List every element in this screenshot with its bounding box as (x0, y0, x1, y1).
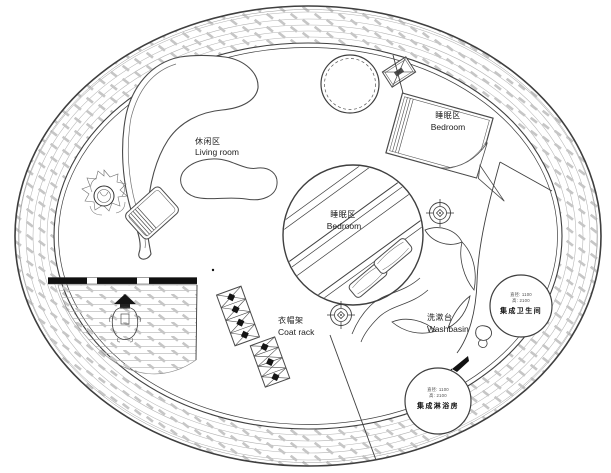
floor-plan-canvas: 休闲区 Living room 睡眠区 Bedroom (0, 0, 611, 473)
potted-plant (82, 170, 127, 215)
bedroom-center-label-zh: 睡眠区 (330, 210, 356, 219)
vent-box (382, 57, 415, 87)
bathroom-pod-name: 集成卫生间 (499, 306, 542, 315)
floor-plan-drawing: 休闲区 Living room 睡眠区 Bedroom (0, 0, 611, 473)
interior-wall-openings (48, 269, 214, 284)
bedroom-center-label-en: Bedroom (327, 221, 362, 231)
coat-rack-label-zh: 衣帽架 (278, 315, 304, 325)
bathroom-pod-dim2: 高: 2100 (512, 297, 530, 304)
round-table (321, 55, 379, 113)
shower-pod-name: 集成淋浴房 (416, 401, 459, 410)
living-room-label-zh: 休闲区 (195, 136, 221, 146)
column-marker-1 (426, 199, 454, 227)
washbasin-label-zh: 洗漱台 (427, 312, 453, 322)
coat-rack-1 (217, 286, 260, 346)
coat-rack-label-en: Coat rack (278, 327, 315, 337)
coat-rack-2 (250, 337, 289, 387)
coffee-table (181, 159, 277, 200)
bathroom-pod-dim1: 直径: 1100 (510, 291, 532, 297)
bedroom-upper-label-zh: 睡眠区 (435, 111, 461, 120)
drain-symbol (476, 326, 492, 348)
reference-dot (212, 269, 214, 271)
washbasin-label-en: Washbasin (427, 324, 469, 334)
bedroom-upper-label-en: Bedroom (431, 122, 466, 132)
living-room-label-en: Living room (195, 147, 239, 157)
shower-pod-dim1: 直径: 1100 (427, 386, 449, 392)
bathroom-pod: 直径: 1100 高: 2100 集成卫生间 (490, 275, 552, 337)
shower-pod-dim2: 高: 2100 (429, 392, 447, 399)
partition-line-b (500, 162, 552, 191)
shower-pod: 直径: 1100 高: 2100 集成淋浴房 (405, 368, 471, 434)
